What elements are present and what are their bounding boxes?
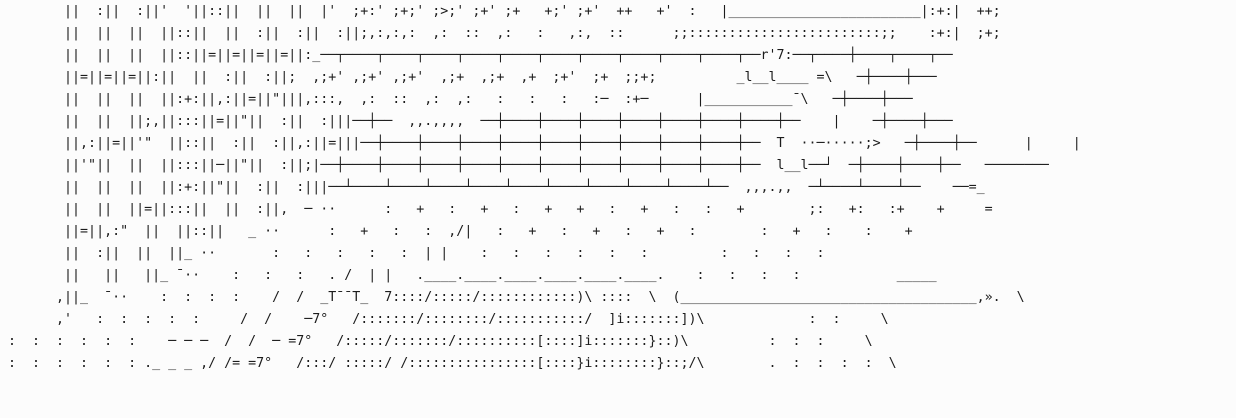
ascii-art-canvas: || :|| :||' '||::|| || || |' ;+:' ;+;' ;… — [0, 0, 1236, 418]
ascii-art: || :|| :||' '||::|| || || |' ;+:' ;+;' ;… — [0, 0, 1236, 375]
